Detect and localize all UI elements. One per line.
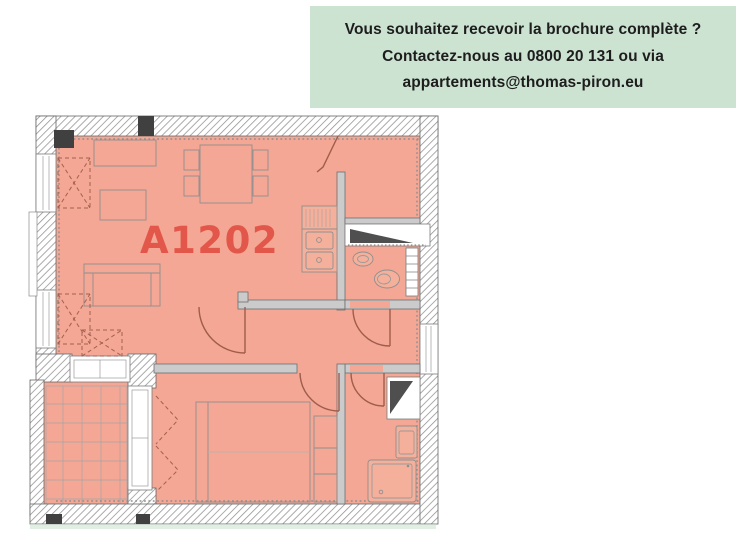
wall-window-stub <box>128 488 156 506</box>
wall-top <box>36 116 438 136</box>
wall-living-hall <box>238 300 345 309</box>
brochure-banner: Vous souhaitez recevoir la brochure comp… <box>310 6 736 108</box>
apartment-floor <box>36 130 426 512</box>
bedroom-window <box>128 386 152 490</box>
kitchen-unit <box>302 206 337 272</box>
wall-kitchen-entry <box>337 172 345 310</box>
left-window-2 <box>36 290 56 348</box>
washbasin-icon <box>353 252 373 266</box>
toilet-icon <box>375 270 400 288</box>
wall-bedroom-top <box>154 364 297 373</box>
wall-duct-top <box>345 218 420 224</box>
banner-line-2: Contactez-nous au 0800 20 131 ou via <box>382 44 664 71</box>
wall-bottom <box>30 504 436 524</box>
banner-line-1: Vous souhaitez recevoir la brochure comp… <box>345 17 702 44</box>
wall-balcony-left <box>30 380 44 516</box>
towel-radiator-icon <box>406 248 418 296</box>
right-window <box>420 324 438 374</box>
wall-bedroom-shower <box>337 364 345 504</box>
vanity-icon <box>396 426 417 458</box>
exterior-sill <box>29 212 37 296</box>
door-pillar <box>238 292 248 302</box>
wall-living-balcony-left <box>36 354 72 382</box>
duct-entry-bathroom <box>345 224 430 246</box>
flyer-page: A1202 Vous souhaitez recevoir la brochur… <box>0 0 736 552</box>
duct-shower-room <box>387 377 420 419</box>
ground-strip <box>30 524 436 529</box>
banner-line-3: appartements@thomas-piron.eu <box>403 70 644 97</box>
left-window-1 <box>36 154 56 212</box>
french-door-living-balcony <box>70 356 130 382</box>
unit-label: A1202 <box>140 219 279 262</box>
wall-right <box>420 116 438 524</box>
wall-living-balcony-right <box>128 354 156 388</box>
shower-tray-icon <box>368 460 416 502</box>
